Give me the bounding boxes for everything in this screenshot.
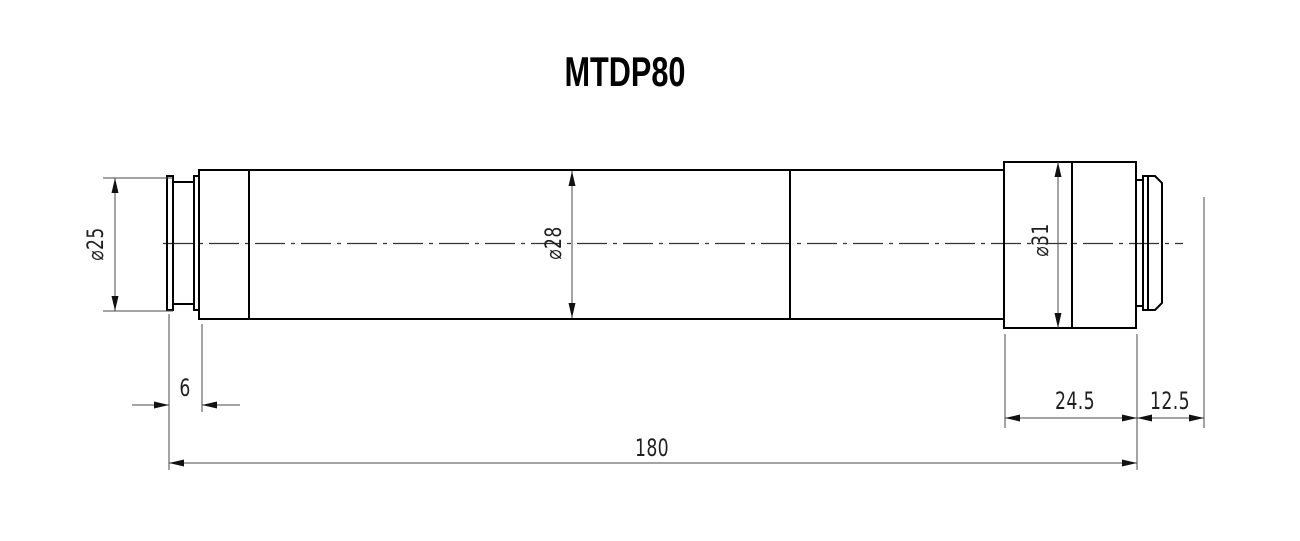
arrow-180-right xyxy=(1122,460,1137,467)
arrow-dia31-up xyxy=(1055,162,1062,177)
dimension-lines xyxy=(115,162,1204,463)
dim-label-rear-block-length: 24.5 xyxy=(1055,389,1095,413)
dim-label-body-diameter: ⌀28 xyxy=(544,226,566,259)
arrow-6-left xyxy=(154,402,169,409)
arrow-dia28-down xyxy=(569,303,576,318)
dim-label-rear-tip-length: 12.5 xyxy=(1150,389,1190,413)
arrow-6-right xyxy=(202,402,217,409)
arrow-dia31-down xyxy=(1055,313,1062,328)
dim-label-rear-block-diameter: ⌀31 xyxy=(1031,223,1053,256)
arrow-dia25-up xyxy=(112,178,119,193)
rear-block xyxy=(1004,162,1136,328)
arrow-24-5-right xyxy=(1122,415,1137,422)
arrow-dia28-up xyxy=(569,171,576,186)
extension-lines xyxy=(103,178,1204,470)
dim-label-front-flange-length: 6 xyxy=(179,376,190,400)
arrow-dia25-down xyxy=(112,296,119,311)
dim-label-front-diameter: ⌀25 xyxy=(86,227,108,260)
arrow-12-5-right xyxy=(1189,415,1204,422)
dim-label-total-length: 180 xyxy=(635,436,669,460)
arrow-180-left xyxy=(169,460,184,467)
arrow-12-5-left xyxy=(1137,415,1152,422)
technical-drawing-canvas: MTDP80 ⌀25 ⌀28 ⌀31 6 24.5 12.5 180 xyxy=(0,0,1300,541)
part-outline xyxy=(167,162,1162,328)
drawing-title: MTDP80 xyxy=(565,51,686,93)
arrowheads xyxy=(112,162,1205,467)
arrow-24-5-left xyxy=(1005,415,1020,422)
main-barrel xyxy=(199,170,1004,319)
